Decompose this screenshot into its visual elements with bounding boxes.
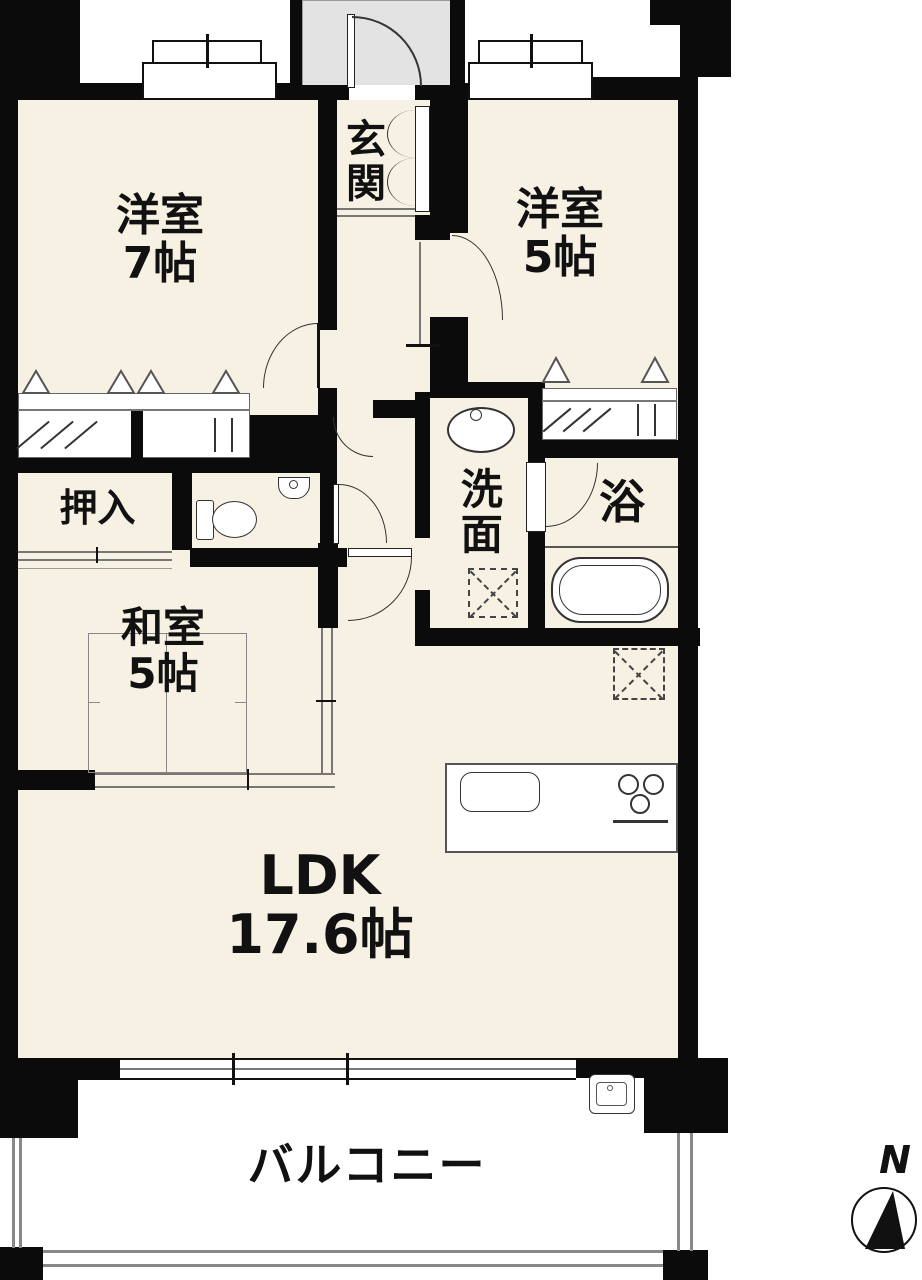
room-size: 5帖 [43,651,283,697]
closet-door-mark [106,369,136,395]
wall-segment [0,100,18,1058]
stove-burner [643,774,664,795]
washing-machine-space [468,568,518,618]
balcony-railing [19,1138,22,1248]
wall-segment [0,1058,120,1080]
entrance-opening [349,85,415,100]
stove-burner [618,774,639,795]
balcony-railing [12,1138,15,1248]
wall-segment [415,590,430,628]
window-tick [530,34,533,68]
sliding-door-tick [247,769,249,790]
wall-segment [318,543,338,628]
compass-needle-icon [865,1191,905,1249]
wall-segment [450,0,465,100]
wall-segment [528,528,545,628]
hand-basin-faucet [289,480,298,489]
closet-door-mark [211,369,241,395]
balcony-partition [690,1133,693,1251]
window-tick [232,1053,235,1085]
room-size: 7帖 [40,240,280,288]
wall-segment [593,77,683,100]
balcony-railing [43,1264,663,1267]
door-leaf-line [317,323,320,388]
bathtub-inner [559,565,661,615]
north-label: N [868,1140,922,1182]
sliding-door-line [18,551,172,553]
floor-plan: 洋室 7帖 洋室 5帖 玄関 押入 和室 5帖 洗面 浴 LDK 17.6帖 バ… [0,0,922,1280]
wall-segment [415,628,700,646]
room-name: 洋室 [440,186,680,234]
wall-segment [415,85,450,100]
wall-segment [0,1080,78,1138]
balcony-railing [43,1250,663,1253]
stove-line [613,820,668,823]
window-tick [206,34,209,68]
wall-segment [290,0,302,88]
room-label-bath: 浴 [596,477,648,528]
door-frame-line [419,242,421,344]
wall-segment [0,1247,43,1280]
door-tick [406,344,440,347]
bay-window [142,62,277,100]
ldk-door-leaf [348,548,412,557]
room-label-washitsu: 和室 5帖 [43,605,283,697]
wall-segment [0,0,80,100]
tatami-line [88,702,100,703]
room-label-genkan: 玄関 [340,106,384,218]
hatch-tick [637,404,639,436]
wall-segment [542,440,680,458]
shoe-closet-leaf [415,106,430,212]
wall-segment [663,1250,708,1280]
wall-segment [415,418,430,538]
closet-door-mark [136,369,166,395]
room-name: 洋室 [40,192,280,240]
washitsu-top-line [18,568,172,569]
sliding-door-tick [96,547,98,563]
hatch-tick [654,404,656,436]
room-label-western5: 洋室 5帖 [440,186,680,283]
kitchen-sink [460,772,540,812]
wall-segment [680,25,731,77]
room-label-ldk: LDK 17.6帖 [165,846,475,965]
closet-door-mark [21,369,51,395]
closet-door-mark [640,356,670,384]
room-name: LDK [165,846,475,905]
wall-segment [318,388,337,418]
room-label-senmen: 洗面 [455,452,501,572]
wall-segment [650,0,731,25]
wall-segment [302,85,349,100]
refrigerator-space [613,648,665,700]
wall-segment [430,382,545,398]
wall-segment [678,77,698,390]
closet-door-mark [541,356,571,384]
wall-segment [430,317,468,392]
closet-divider [131,411,143,458]
bath-deck-line [545,546,678,548]
wall-segment [318,100,337,330]
sliding-door-line [95,773,335,775]
room-label-oshiire: 押入 [25,488,170,530]
tatami-line [235,702,247,703]
wall-segment [644,1058,728,1133]
sliding-door-line [18,559,172,561]
room-label-western7: 洋室 7帖 [40,192,280,289]
window-tick [346,1053,349,1085]
stove-burner [630,794,650,814]
room-size: 5帖 [440,234,680,282]
balcony-partition [677,1133,680,1251]
room-size: 17.6帖 [165,905,475,964]
wall-segment [18,770,95,790]
wall-segment [415,392,430,420]
hatch-tick [231,418,233,452]
washroom-door-opening [415,538,430,590]
bath-door-leaf [526,462,546,532]
hatch-tick [214,418,216,452]
wall-segment [172,458,192,550]
balcony-sink-drain [607,1085,613,1091]
vanity-faucet [470,409,482,421]
sliding-door-tick [316,700,336,702]
room-label-balcony: バルコニー [157,1140,577,1191]
wall-segment [678,390,698,1060]
sliding-door-line [95,786,335,788]
room-name: 和室 [43,605,283,651]
toilet-bowl [212,501,257,538]
closet-line [542,400,677,402]
